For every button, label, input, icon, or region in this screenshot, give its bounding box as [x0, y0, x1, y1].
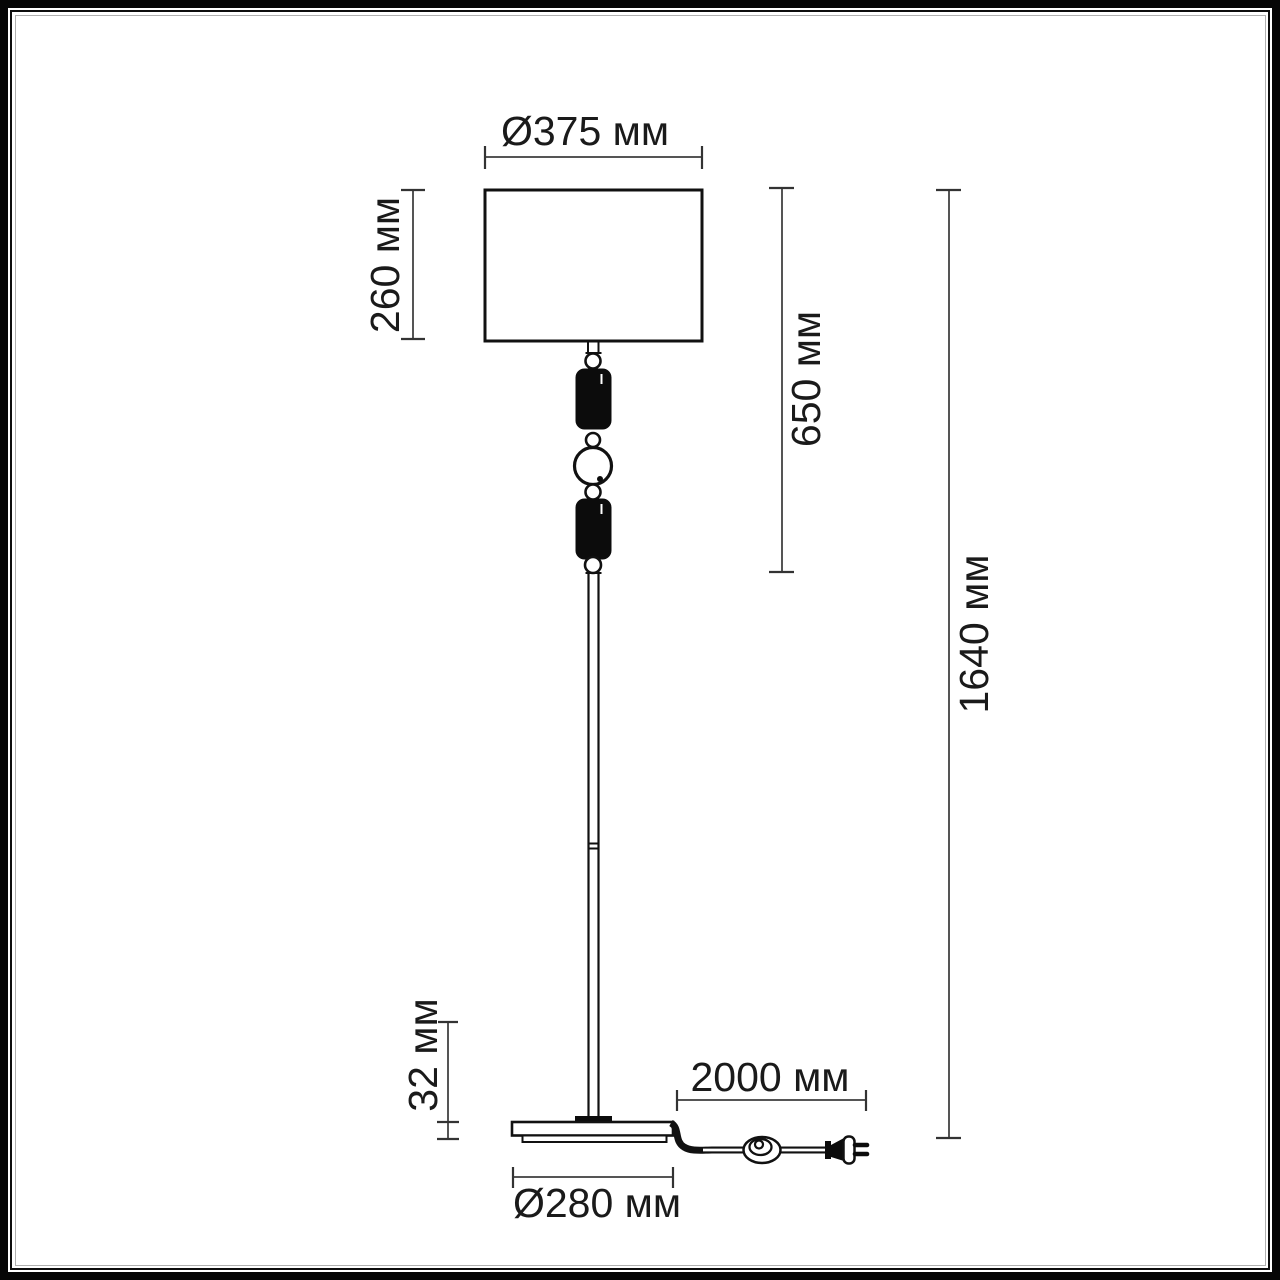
decor-cylinder-upper	[576, 369, 612, 430]
lamp-shade	[485, 190, 702, 341]
decor-bead-upper-middle	[586, 433, 600, 447]
floor-lamp-dimension-drawing: Ø375 мм 260 мм 650 мм 1640 мм	[0, 0, 1280, 1280]
lamp-neck	[586, 341, 602, 353]
decor-bead-bottom	[585, 557, 601, 573]
decor-bead-lower-middle	[586, 485, 601, 500]
dim-label-base-diameter: Ø280 мм	[513, 1180, 681, 1226]
plug-face	[844, 1137, 855, 1164]
dim-label-shade-height: 260 мм	[362, 197, 408, 333]
decor-bead-top	[586, 354, 601, 369]
plug-ferrule	[825, 1141, 831, 1159]
dim-label-upper-section-height: 650 мм	[783, 311, 829, 447]
plug-body	[831, 1138, 844, 1161]
dim-label-total-height: 1640 мм	[951, 555, 997, 714]
power-plug	[825, 1137, 867, 1164]
dim-label-shade-diameter: Ø375 мм	[501, 108, 669, 154]
dim-label-base-height: 32 мм	[400, 998, 446, 1111]
dimension-diagram: Ø375 мм 260 мм 650 мм 1640 мм	[0, 0, 1280, 1280]
foot-switch	[744, 1137, 781, 1163]
base-bottom-lip	[523, 1136, 667, 1143]
decor-cylinder-lower	[576, 499, 612, 560]
base-top-plate	[512, 1122, 673, 1136]
dim-label-cord-length: 2000 мм	[691, 1054, 850, 1100]
lamp-stem	[586, 573, 602, 1116]
lamp-base	[512, 1116, 673, 1142]
sphere-detail	[597, 476, 603, 482]
decor-sphere	[575, 448, 612, 485]
